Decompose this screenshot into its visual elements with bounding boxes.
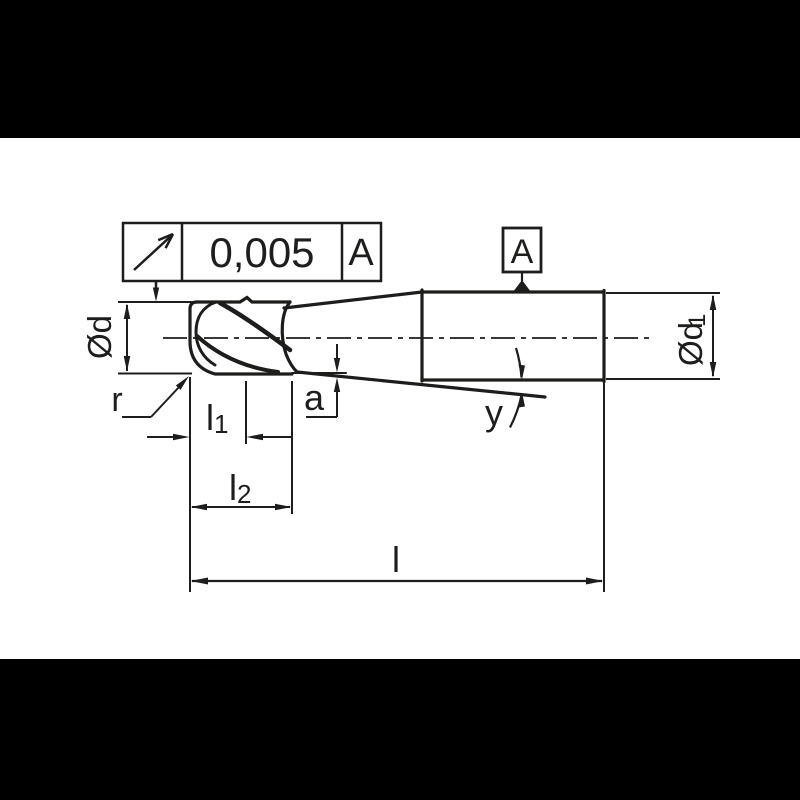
svg-text:Ød: Ød [672, 322, 709, 366]
svg-text:1: 1 [214, 409, 228, 439]
svg-text:l: l [206, 397, 214, 438]
svg-text:1: 1 [684, 314, 711, 327]
svg-text:l: l [229, 467, 237, 508]
label-a: a [304, 377, 325, 418]
label-y: y [485, 392, 503, 433]
label-diameter-d: Ød [81, 315, 118, 359]
label-l: l [392, 539, 400, 580]
screenshot-canvas: 0,005 A A Ød Ød 1 [0, 0, 800, 800]
datum-label: A [511, 233, 534, 271]
technical-drawing: 0,005 A A Ød Ød 1 [0, 0, 800, 800]
svg-text:Ød: Ød [81, 315, 118, 359]
label-r: r [111, 381, 122, 419]
tolerance-value: 0,005 [209, 229, 314, 276]
svg-text:2: 2 [237, 479, 251, 509]
tolerance-datum-ref: A [348, 232, 374, 274]
